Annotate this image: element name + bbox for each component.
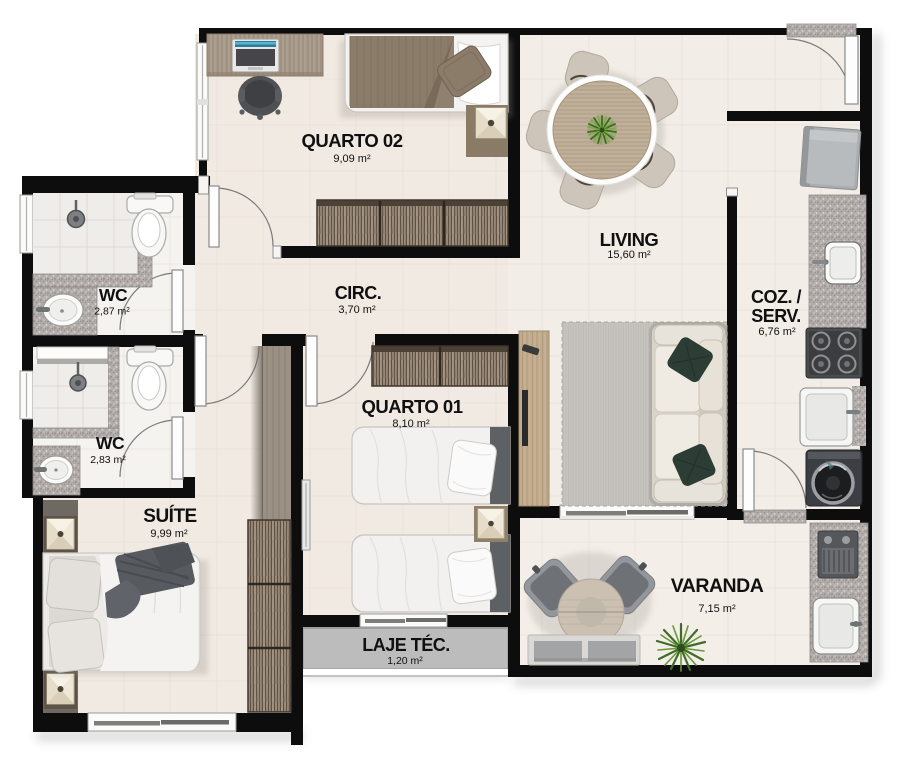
svg-text:QUARTO 02: QUARTO 02	[301, 130, 402, 151]
svg-text:CIRC.: CIRC.	[335, 283, 382, 303]
svg-text:WC: WC	[99, 285, 128, 305]
svg-text:15,60 m²: 15,60 m²	[607, 249, 651, 261]
svg-text:2,87 m²: 2,87 m²	[94, 306, 130, 318]
svg-text:VARANDA: VARANDA	[671, 575, 764, 597]
svg-text:9,99 m²: 9,99 m²	[150, 528, 188, 540]
svg-text:SERV.: SERV.	[751, 306, 801, 326]
svg-text:LAJE TÉC.: LAJE TÉC.	[362, 634, 450, 655]
svg-text:9,09 m²: 9,09 m²	[333, 153, 371, 165]
svg-text:SUÍTE: SUÍTE	[143, 505, 196, 527]
svg-text:2,83 m²: 2,83 m²	[90, 454, 126, 466]
svg-text:QUARTO 01: QUARTO 01	[361, 396, 462, 417]
svg-text:7,15 m²: 7,15 m²	[698, 603, 736, 615]
svg-text:1,20 m²: 1,20 m²	[387, 655, 423, 667]
svg-text:8,10 m²: 8,10 m²	[392, 418, 430, 430]
svg-text:WC: WC	[96, 433, 125, 453]
svg-text:LIVING: LIVING	[600, 229, 659, 250]
svg-text:6,76 m²: 6,76 m²	[758, 326, 796, 338]
svg-text:COZ. /: COZ. /	[751, 287, 801, 307]
svg-text:3,70 m²: 3,70 m²	[338, 304, 376, 316]
